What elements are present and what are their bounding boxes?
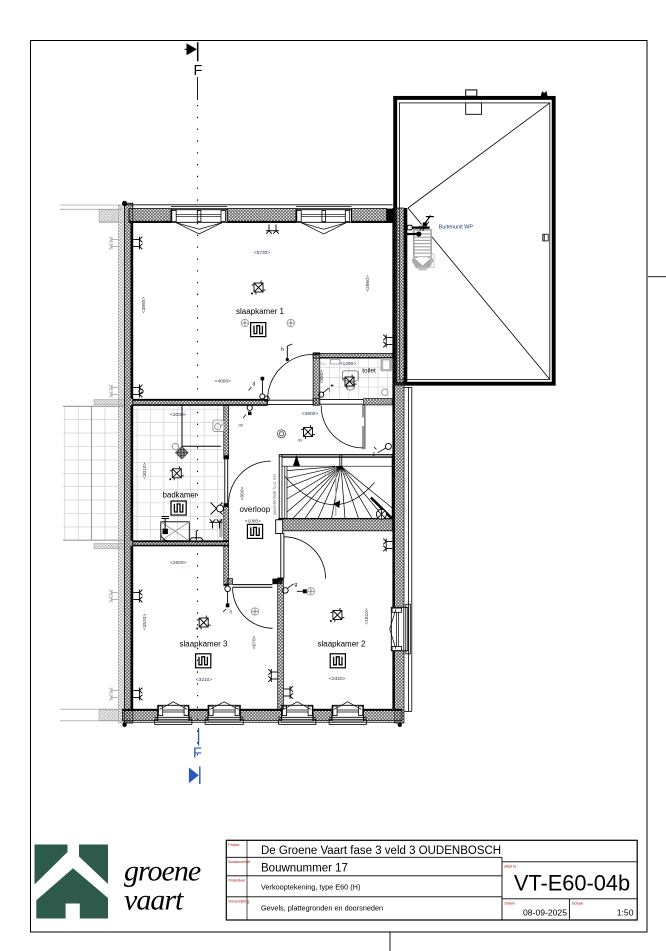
svg-text:Bouwnummer: Bouwnummer <box>228 860 251 864</box>
svg-text:<3010>: <3010> <box>142 462 148 478</box>
svg-text:Blad nr.: Blad nr. <box>505 864 517 868</box>
svg-text:<3890>: <3890> <box>141 297 147 313</box>
svg-text:F: F <box>194 63 203 79</box>
svg-text:<5730>: <5730> <box>254 250 270 256</box>
svg-text:Schaal: Schaal <box>572 901 583 905</box>
svg-text:F: F <box>193 746 202 762</box>
svg-text:Buitenunit WP: Buitenunit WP <box>439 225 474 231</box>
svg-text:Onderdeel: Onderdeel <box>228 878 245 882</box>
svg-text:<1290>: <1290> <box>340 361 356 367</box>
svg-text:Bouwnummer 17: Bouwnummer 17 <box>261 863 348 875</box>
svg-text:VT-E60-04b: VT-E60-04b <box>514 871 630 896</box>
svg-text:slaapkamer 1: slaapkamer 1 <box>236 307 285 316</box>
svg-text:<3600>: <3600> <box>302 411 318 417</box>
svg-text:panelenhek h=1 mtr: panelenhek h=1 mtr <box>272 473 277 514</box>
svg-text:<1080>: <1080> <box>245 518 261 524</box>
svg-text:Gevels, plattegronden en doors: Gevels, plattegronden en doorsneden <box>261 904 383 913</box>
svg-text:Verkooptekening, type E60 (H): Verkooptekening, type E60 (H) <box>261 883 360 892</box>
svg-text:Project: Project <box>228 843 239 847</box>
svg-text:ov: ov <box>298 438 304 443</box>
svg-text:toilet: toilet <box>362 367 376 374</box>
svg-text:<2030>: <2030> <box>170 412 186 418</box>
svg-text:vaart: vaart <box>124 884 184 917</box>
svg-text:RA: RA <box>320 361 327 366</box>
svg-text:badkamer: badkamer <box>163 491 198 500</box>
svg-text:Datum: Datum <box>505 901 516 905</box>
svg-text:<3210>: <3210> <box>196 677 212 683</box>
svg-text:08-09-2025: 08-09-2025 <box>523 908 567 918</box>
svg-text:<1810>: <1810> <box>364 608 370 624</box>
svg-text:ov: ov <box>239 423 245 428</box>
svg-text:slaapkamer 2: slaapkamer 2 <box>317 640 366 649</box>
svg-text:<4000>: <4000> <box>215 378 231 384</box>
svg-text:<670>: <670> <box>251 636 257 650</box>
svg-text:overloop: overloop <box>239 505 270 514</box>
svg-text:g: g <box>295 582 298 588</box>
svg-text:d: d <box>253 382 256 388</box>
svg-text:<2860>: <2860> <box>365 275 371 291</box>
svg-text:<3520>: <3520> <box>142 614 148 630</box>
svg-text:h: h <box>230 610 233 616</box>
svg-text:<880>: <880> <box>319 370 325 384</box>
svg-text:h: h <box>281 347 284 353</box>
svg-text:<2000>: <2000> <box>170 560 186 566</box>
svg-text:De Groene Vaart fase 3 veld 3: De Groene Vaart fase 3 veld 3 OUDENBOSCH <box>261 845 501 857</box>
svg-text:open trap: open trap <box>325 471 349 477</box>
svg-text:<990>: <990> <box>239 487 245 501</box>
svg-text:Omschrijving: Omschrijving <box>228 899 249 903</box>
svg-text:<2420>: <2420> <box>329 676 345 682</box>
svg-text:slaapkamer 3: slaapkamer 3 <box>179 640 228 649</box>
svg-text:1:50: 1:50 <box>617 908 634 918</box>
